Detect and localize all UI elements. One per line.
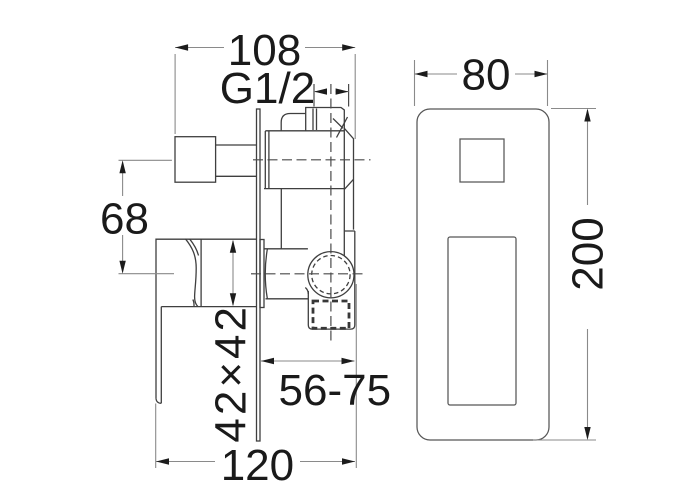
svg-text:200: 200: [564, 217, 613, 290]
svg-text:G1/2: G1/2: [220, 64, 315, 113]
svg-text:120: 120: [221, 441, 294, 490]
svg-text:68: 68: [100, 195, 149, 244]
svg-text:56-75: 56-75: [279, 366, 392, 415]
svg-text:42×42: 42×42: [206, 304, 255, 443]
svg-text:80: 80: [462, 50, 511, 99]
